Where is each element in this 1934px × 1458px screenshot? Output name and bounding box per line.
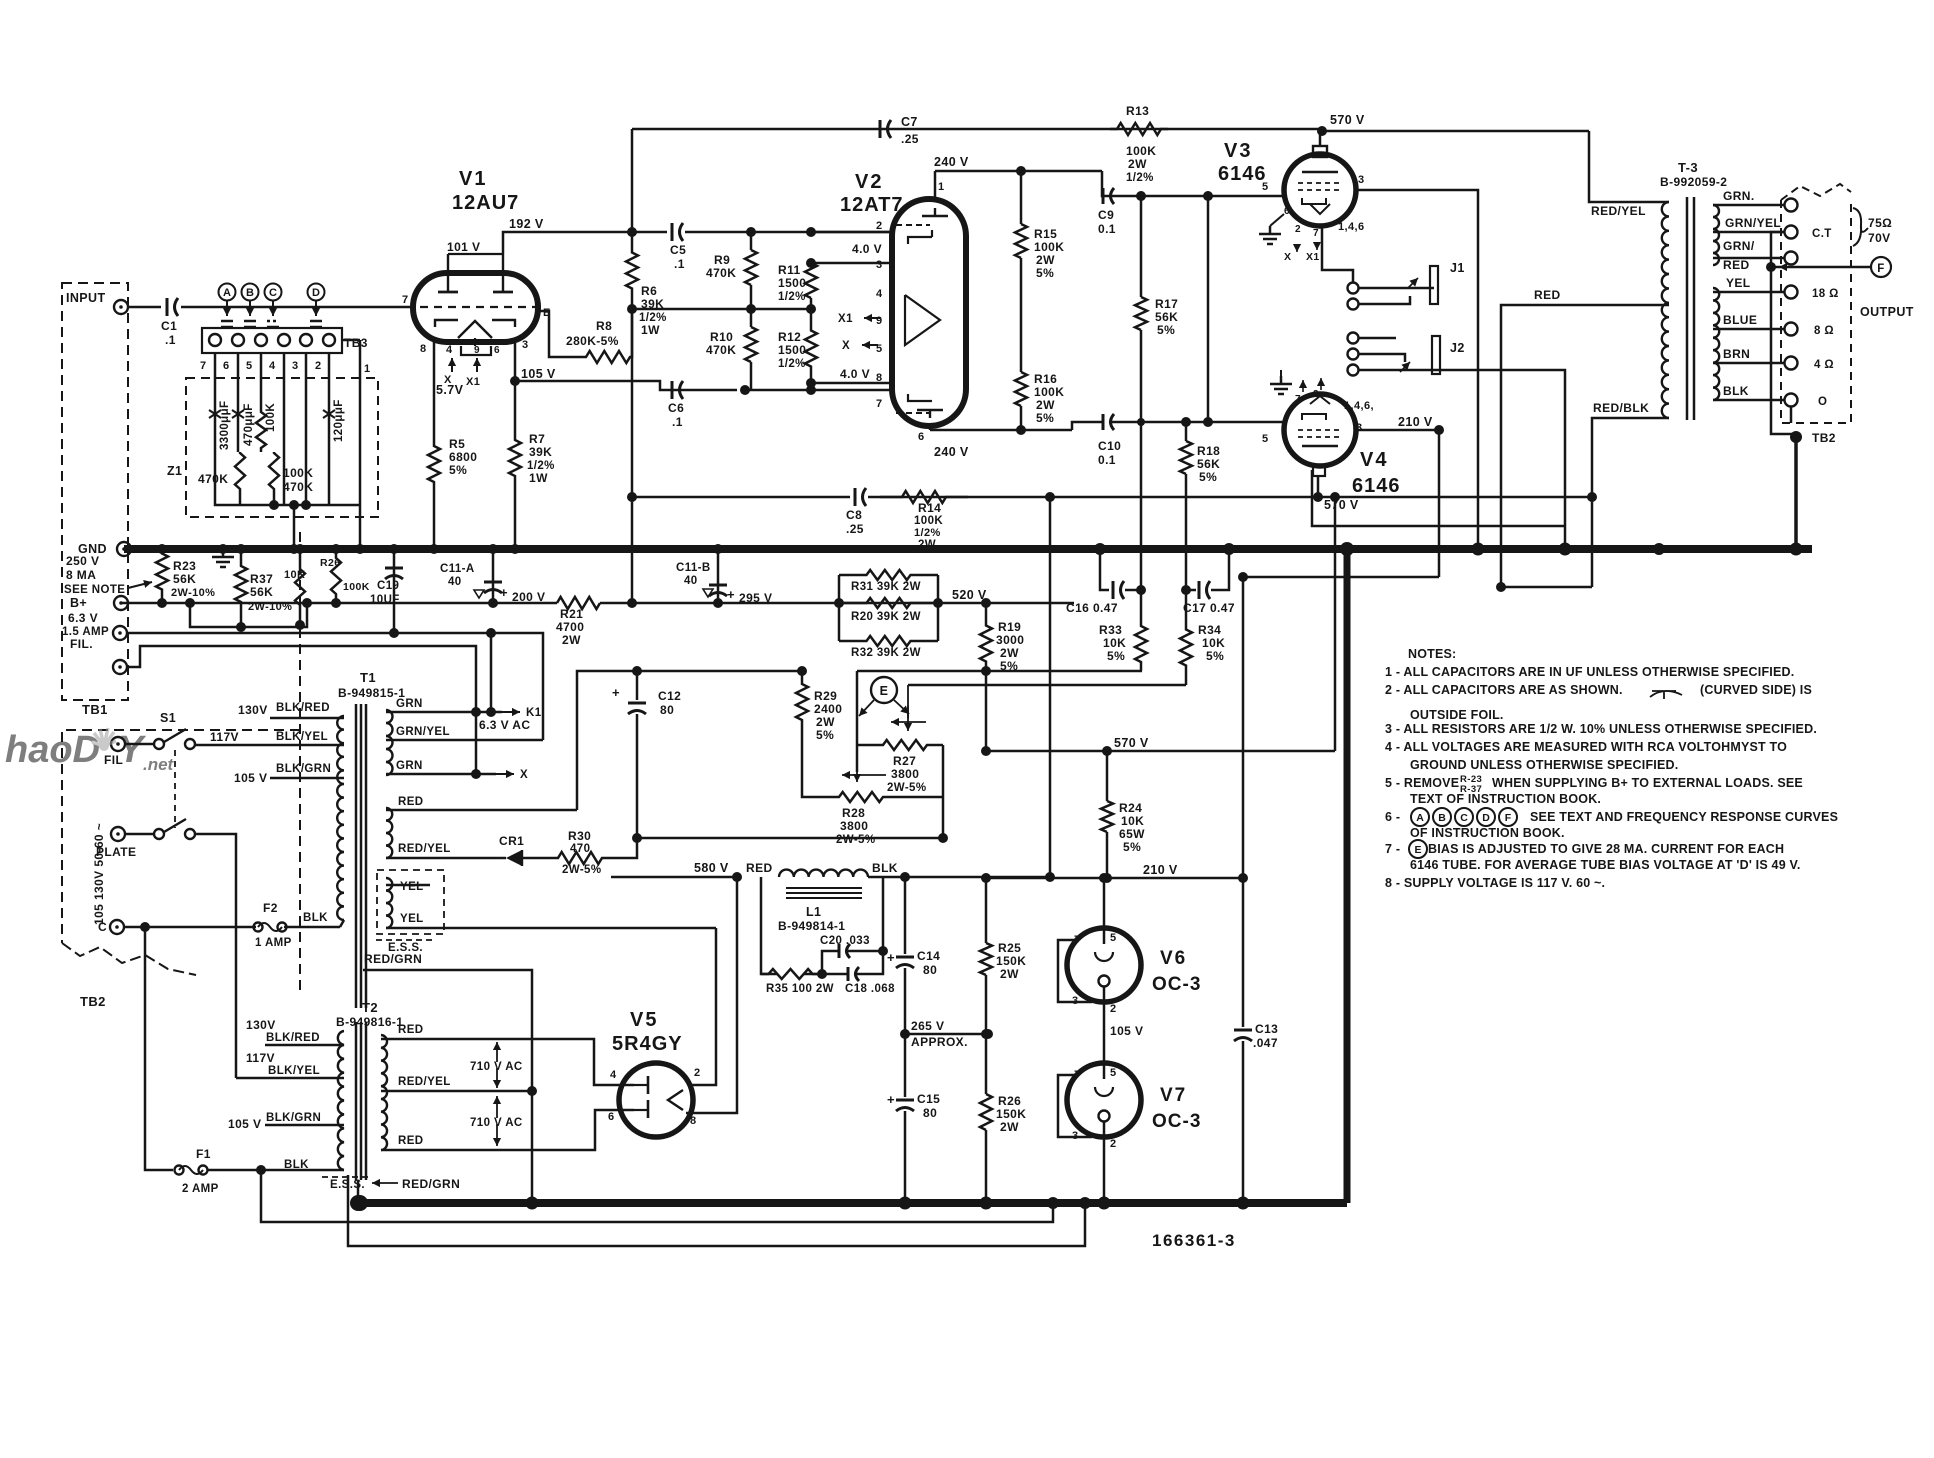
svg-text:7: 7 (876, 398, 883, 410)
svg-text:C10: C10 (1098, 439, 1121, 453)
svg-text:R33: R33 (1099, 623, 1122, 637)
svg-text:.net: .net (143, 755, 175, 774)
svg-text:3300μμF: 3300μμF (219, 401, 231, 450)
svg-text:C17 0.47: C17 0.47 (1183, 601, 1235, 615)
svg-text:100K: 100K (265, 403, 277, 432)
svg-text:570 V: 570 V (1324, 498, 1359, 512)
svg-text:8 MA: 8 MA (66, 568, 96, 582)
svg-text:X: X (1284, 251, 1291, 263)
svg-text:.25: .25 (901, 132, 919, 146)
svg-text:B+: B+ (70, 596, 87, 610)
svg-text:6146: 6146 (1218, 163, 1267, 185)
svg-text:V1: V1 (459, 168, 487, 190)
svg-text:APPROX.: APPROX. (911, 1035, 968, 1049)
svg-text:OUTPUT: OUTPUT (1860, 305, 1914, 319)
svg-text:4.0 V: 4.0 V (852, 242, 882, 256)
svg-text:SEE TEXT AND FREQUENCY RESPONS: SEE TEXT AND FREQUENCY RESPONSE CURVES (1530, 810, 1838, 824)
svg-text:2W: 2W (1128, 157, 1147, 171)
svg-text:E: E (880, 684, 889, 698)
svg-text:1W: 1W (529, 471, 548, 485)
svg-text:2W: 2W (918, 539, 936, 551)
svg-text:2W: 2W (1036, 253, 1055, 267)
svg-text:470μμF: 470μμF (243, 403, 255, 446)
svg-text:12AU7: 12AU7 (452, 192, 519, 214)
svg-text:.1: .1 (672, 415, 683, 429)
svg-text:5.7V: 5.7V (436, 383, 464, 397)
svg-text:3 - ALL RESISTORS ARE 1/2 W. 1: 3 - ALL RESISTORS ARE 1/2 W. 10% UNLESS … (1385, 722, 1817, 736)
svg-text:9: 9 (876, 315, 883, 327)
svg-text:RED: RED (398, 1135, 423, 1147)
svg-text:TB3: TB3 (344, 336, 368, 350)
svg-text:GRN/YEL: GRN/YEL (1725, 216, 1781, 230)
svg-text:1 AMP: 1 AMP (255, 937, 292, 949)
svg-text:YEL: YEL (400, 881, 424, 893)
svg-text:210 V: 210 V (1398, 415, 1433, 429)
svg-text:R27: R27 (893, 754, 916, 768)
svg-text:C9: C9 (1098, 208, 1114, 222)
svg-text:FIL.: FIL. (70, 637, 93, 651)
svg-text:6146: 6146 (1352, 475, 1401, 497)
svg-text:5: 5 (1110, 932, 1117, 944)
svg-text:Z1: Z1 (167, 464, 182, 478)
svg-text:R28: R28 (842, 806, 865, 820)
svg-text:GRN/: GRN/ (1723, 239, 1755, 253)
svg-text:BLK: BLK (284, 1159, 309, 1171)
svg-text:R10: R10 (710, 330, 733, 344)
svg-text:2: 2 (1110, 1138, 1117, 1150)
svg-text:C18 .068: C18 .068 (845, 983, 895, 995)
svg-text:R13: R13 (1126, 104, 1149, 118)
svg-text:1500: 1500 (778, 343, 806, 357)
svg-text:GRN.: GRN. (1723, 189, 1755, 203)
svg-text:F2: F2 (263, 901, 278, 915)
svg-text:5%: 5% (1036, 266, 1054, 280)
svg-text:5%: 5% (1199, 470, 1217, 484)
svg-text:C: C (98, 920, 107, 934)
svg-text:C: C (269, 287, 277, 299)
svg-text:R19: R19 (998, 620, 1021, 634)
svg-text:R24: R24 (1119, 801, 1142, 815)
svg-text:T-3: T-3 (1678, 160, 1698, 175)
svg-text:D: D (312, 287, 320, 299)
svg-text:R29: R29 (814, 689, 837, 703)
svg-text:+: + (500, 585, 508, 600)
svg-text:4: 4 (610, 1069, 617, 1081)
svg-text:2W-5%: 2W-5% (562, 864, 601, 876)
svg-text:6: 6 (608, 1111, 615, 1123)
svg-text:R37: R37 (250, 572, 273, 586)
svg-text:5%: 5% (1206, 649, 1224, 663)
svg-text:100K: 100K (343, 581, 370, 593)
svg-text:C7: C7 (901, 115, 918, 129)
svg-text:RED/GRN: RED/GRN (402, 1177, 460, 1191)
svg-text:56K: 56K (173, 572, 196, 586)
svg-text:GRN/YEL: GRN/YEL (396, 726, 450, 738)
svg-text:3: 3 (1356, 422, 1363, 434)
svg-text:F: F (1505, 812, 1512, 824)
svg-text:BLK/YEL: BLK/YEL (268, 1065, 320, 1077)
svg-text:R7: R7 (529, 432, 545, 446)
svg-text:100K: 100K (1034, 240, 1064, 254)
svg-text:105 V: 105 V (521, 367, 556, 381)
svg-text:4: 4 (446, 344, 453, 356)
svg-text:C: C (1460, 812, 1468, 824)
svg-text:C16 0.47: C16 0.47 (1066, 601, 1118, 615)
svg-text:130V: 130V (238, 703, 268, 717)
svg-text:80: 80 (660, 703, 674, 717)
svg-text:105 V: 105 V (228, 1117, 261, 1131)
svg-text:A: A (223, 287, 231, 299)
svg-text:470: 470 (570, 843, 590, 855)
svg-text:YEL: YEL (400, 913, 424, 925)
svg-text:2W-10%: 2W-10% (248, 601, 292, 613)
svg-text:6146 TUBE. FOR AVERAGE TUBE BI: 6146 TUBE. FOR AVERAGE TUBE BIAS VOLTAGE… (1410, 858, 1801, 872)
svg-text:710 V AC: 710 V AC (470, 1061, 523, 1073)
svg-text:.1: .1 (165, 333, 176, 347)
svg-text:B-992059-2: B-992059-2 (1660, 175, 1727, 189)
svg-text:R31 39K 2W: R31 39K 2W (851, 581, 921, 593)
svg-text:105 130V 50-60 ~: 105 130V 50-60 ~ (92, 823, 106, 925)
svg-text:6 -: 6 - (1385, 810, 1400, 824)
svg-text:R34: R34 (1198, 623, 1221, 637)
svg-text:YEL: YEL (1726, 276, 1751, 290)
svg-text:0.1: 0.1 (1098, 453, 1116, 467)
svg-text:2W: 2W (1000, 646, 1019, 660)
svg-text:X1: X1 (1306, 251, 1320, 263)
svg-text:570 V: 570 V (1330, 113, 1365, 127)
svg-text:7: 7 (1313, 228, 1319, 239)
svg-text:210 V: 210 V (1143, 863, 1178, 877)
svg-text:65W: 65W (1119, 827, 1145, 841)
svg-text:40: 40 (448, 576, 462, 588)
svg-text:5: 5 (246, 360, 253, 372)
svg-text:2: 2 (315, 360, 322, 372)
svg-text:BLK: BLK (872, 861, 898, 875)
svg-text:S1: S1 (160, 711, 176, 725)
svg-text:R35 100 2W: R35 100 2W (766, 983, 834, 995)
svg-text:100K: 100K (914, 515, 943, 527)
svg-text:+: + (727, 587, 735, 602)
svg-text:+: + (887, 950, 895, 965)
svg-text:470K: 470K (706, 266, 736, 280)
svg-text:.047: .047 (1253, 1036, 1278, 1050)
svg-text:1/2%: 1/2% (1126, 172, 1154, 184)
svg-text:R14: R14 (918, 501, 941, 515)
svg-text:T1: T1 (360, 670, 376, 685)
svg-text:BIAS IS ADJUSTED TO GIVE 28: BIAS IS ADJUSTED TO GIVE 28 MA. CURRENT … (1428, 842, 1784, 856)
svg-text:40: 40 (684, 575, 698, 587)
svg-text:6: 6 (1284, 206, 1290, 217)
svg-text:V5: V5 (630, 1009, 658, 1031)
svg-text:RED/YEL: RED/YEL (398, 1076, 451, 1088)
svg-text:4: 4 (269, 360, 276, 372)
svg-text:R18: R18 (1197, 444, 1220, 458)
svg-text:2: 2 (694, 1067, 701, 1079)
svg-text:R20 39K 2W: R20 39K 2W (851, 611, 921, 623)
svg-text:RED: RED (398, 796, 423, 808)
svg-text:OC-3: OC-3 (1152, 1111, 1201, 1132)
svg-text:80: 80 (923, 1106, 937, 1120)
svg-text:3800: 3800 (891, 767, 919, 781)
svg-text:PLATE: PLATE (96, 845, 136, 859)
svg-text:X: X (520, 769, 528, 781)
svg-text:1 - ALL CAPACITORS ARE IN UF U: 1 - ALL CAPACITORS ARE IN UF UNLESS OTHE… (1385, 665, 1794, 679)
svg-text:R32 39K 2W: R32 39K 2W (851, 647, 921, 659)
svg-text:C.T: C.T (1812, 228, 1832, 240)
svg-text:R11: R11 (778, 263, 801, 277)
svg-text:RED/GRN: RED/GRN (364, 952, 422, 966)
svg-text:NOTES:: NOTES: (1408, 647, 1456, 661)
svg-text:C8: C8 (846, 508, 862, 522)
svg-text:TB1: TB1 (82, 702, 108, 717)
svg-text:2: 2 (1110, 1003, 1117, 1015)
svg-text:3800: 3800 (840, 819, 868, 833)
svg-text:O: O (1818, 396, 1827, 408)
svg-text:R8: R8 (596, 319, 612, 333)
svg-text:18 Ω: 18 Ω (1812, 288, 1839, 300)
svg-text:56K: 56K (250, 585, 273, 599)
svg-text:R17: R17 (1155, 297, 1178, 311)
svg-text:5%: 5% (816, 728, 834, 742)
svg-text:105 V: 105 V (1110, 1024, 1143, 1038)
svg-text:R5: R5 (449, 437, 465, 451)
svg-text:250 V: 250 V (66, 554, 99, 568)
svg-text:2W: 2W (562, 633, 581, 647)
svg-text:295 V: 295 V (739, 591, 772, 605)
svg-text:C15: C15 (917, 1092, 940, 1106)
svg-text:2: 2 (1313, 389, 1319, 400)
svg-text:R23: R23 (173, 559, 196, 573)
svg-text:E: E (1414, 844, 1421, 856)
svg-text:OF INSTRUCTION BOOK.: OF INSTRUCTION BOOK. (1410, 826, 1565, 840)
svg-text:+: + (612, 685, 620, 700)
svg-text:5R4GY: 5R4GY (612, 1033, 683, 1055)
svg-text:RED: RED (398, 1024, 423, 1036)
svg-text:10K: 10K (284, 569, 305, 581)
svg-text:J1: J1 (1450, 261, 1465, 275)
svg-text:CR1: CR1 (499, 834, 524, 848)
svg-text:6800: 6800 (449, 450, 477, 464)
svg-text:2: 2 (1295, 224, 1301, 235)
svg-text:X1: X1 (466, 376, 480, 388)
svg-text:R6: R6 (641, 284, 657, 298)
svg-text:7: 7 (200, 360, 207, 372)
svg-text:TB2: TB2 (80, 994, 106, 1009)
svg-text:10K: 10K (1202, 636, 1225, 650)
svg-text:200 V: 200 V (512, 590, 545, 604)
svg-text:V7: V7 (1160, 1085, 1187, 1106)
svg-text:C5: C5 (670, 243, 686, 257)
svg-text:1W: 1W (641, 323, 660, 337)
svg-text:D: D (1482, 812, 1490, 824)
svg-text:BLK/RED: BLK/RED (276, 702, 330, 714)
svg-text:.25: .25 (846, 522, 864, 536)
svg-text:RED: RED (1534, 288, 1561, 302)
svg-text:R15: R15 (1034, 227, 1057, 241)
svg-text:2W: 2W (1036, 398, 1055, 412)
svg-text:R26: R26 (998, 1094, 1021, 1108)
svg-text:3: 3 (876, 259, 883, 271)
svg-text:9: 9 (474, 345, 480, 356)
svg-text:5: 5 (1262, 433, 1269, 445)
svg-text:6.3 V AC: 6.3 V AC (479, 718, 530, 732)
svg-text:56K: 56K (1155, 310, 1178, 324)
svg-text:V4: V4 (1360, 449, 1388, 471)
svg-text:TEXT OF INSTRUCTION BOOK.: TEXT OF INSTRUCTION BOOK. (1410, 792, 1601, 806)
svg-text:R25: R25 (998, 941, 1021, 955)
svg-text:5: 5 (1110, 1067, 1117, 1079)
svg-text:RED/BLK: RED/BLK (1593, 401, 1649, 415)
svg-text:3000: 3000 (996, 633, 1024, 647)
svg-text:6: 6 (494, 345, 500, 356)
svg-text:3: 3 (1358, 174, 1365, 186)
svg-text:6: 6 (918, 431, 925, 443)
svg-text:J2: J2 (1450, 341, 1465, 355)
svg-text:RED: RED (1723, 258, 1750, 272)
svg-text:8 - SUPPLY VOLTAGE IS 117 V. 6: 8 - SUPPLY VOLTAGE IS 117 V. 60 ~. (1385, 876, 1605, 890)
svg-text:130V: 130V (246, 1018, 276, 1032)
svg-text:2W-5%: 2W-5% (836, 834, 875, 846)
svg-text:B-949816-1: B-949816-1 (336, 1015, 403, 1029)
svg-text:56K: 56K (1197, 457, 1220, 471)
svg-text:10K: 10K (1121, 814, 1144, 828)
svg-text:C12: C12 (658, 689, 681, 703)
svg-text:R12: R12 (778, 330, 801, 344)
svg-text:39K: 39K (529, 445, 552, 459)
svg-text:haoD: haoD (5, 729, 100, 771)
svg-text:R30: R30 (568, 829, 591, 843)
svg-text:101 V: 101 V (447, 240, 480, 254)
svg-text:C6: C6 (668, 401, 684, 415)
svg-text:166361-3: 166361-3 (1152, 1231, 1236, 1250)
svg-text:5%: 5% (1157, 323, 1175, 337)
svg-text:100K: 100K (1034, 385, 1064, 399)
svg-text:105 V: 105 V (234, 771, 267, 785)
svg-text:1/2%: 1/2% (778, 358, 806, 370)
svg-text:4 Ω: 4 Ω (1814, 359, 1834, 371)
svg-text:580 V: 580 V (694, 861, 729, 875)
svg-text:8: 8 (690, 1115, 697, 1127)
svg-text:OUTSIDE FOIL.: OUTSIDE FOIL. (1410, 708, 1504, 722)
svg-text:+: + (887, 1092, 895, 1107)
svg-text:B: B (246, 287, 254, 299)
svg-text:240 V: 240 V (934, 155, 969, 169)
svg-text:710 V AC: 710 V AC (470, 1117, 523, 1129)
svg-text:5%: 5% (1107, 649, 1125, 663)
svg-text:TB2: TB2 (1812, 431, 1836, 445)
svg-text:T2: T2 (362, 1000, 378, 1015)
svg-text:0.1: 0.1 (1098, 222, 1116, 236)
svg-text:A: A (1416, 812, 1424, 824)
svg-text:V2: V2 (855, 171, 883, 193)
svg-text:OC-3: OC-3 (1152, 974, 1201, 995)
svg-text:7 -: 7 - (1385, 842, 1400, 856)
svg-text:1: 1 (364, 363, 371, 375)
svg-text:1,4,6,: 1,4,6, (1344, 400, 1374, 412)
svg-text:GRN: GRN (396, 698, 423, 710)
svg-text:4 - ALL VOLTAGES ARE MEASURED: 4 - ALL VOLTAGES ARE MEASURED WITH RCA V… (1385, 740, 1787, 754)
svg-text:150K: 150K (996, 1107, 1026, 1121)
svg-text:BLK/GRN: BLK/GRN (266, 1112, 321, 1124)
svg-text:117V: 117V (210, 730, 239, 744)
svg-text:RED/YEL: RED/YEL (1591, 204, 1646, 218)
svg-text:C11-B: C11-B (676, 562, 711, 574)
svg-text:2 - ALL CAPACITORS ARE AS SHOW: 2 - ALL CAPACITORS ARE AS SHOWN. (1385, 683, 1623, 697)
svg-text:V6: V6 (1160, 948, 1187, 969)
svg-text:1500: 1500 (778, 276, 806, 290)
svg-text:R-37: R-37 (1460, 784, 1482, 795)
svg-text:X1: X1 (838, 313, 853, 325)
svg-text:75Ω: 75Ω (1868, 216, 1892, 230)
svg-text:4.0 V: 4.0 V (840, 367, 870, 381)
svg-text:7: 7 (1295, 394, 1301, 405)
svg-text:RED/YEL: RED/YEL (398, 843, 451, 855)
svg-text:5 - REMOVE: 5 - REMOVE (1385, 776, 1459, 790)
svg-text:C13: C13 (1255, 1022, 1278, 1036)
svg-text:470K: 470K (706, 343, 736, 357)
svg-text:BLK: BLK (303, 912, 328, 924)
svg-text:(CURVED SIDE) IS: (CURVED SIDE) IS (1700, 683, 1812, 697)
svg-text:BLK/YEL: BLK/YEL (276, 731, 328, 743)
svg-text:570 V: 570 V (1114, 736, 1149, 750)
svg-text:2W-5%: 2W-5% (887, 782, 926, 794)
svg-text:L1: L1 (806, 905, 821, 919)
svg-text:100K: 100K (283, 466, 313, 480)
svg-text:3: 3 (292, 360, 299, 372)
svg-text:C20 .033: C20 .033 (820, 935, 870, 947)
svg-text:R26: R26 (320, 557, 340, 569)
svg-text:V3: V3 (1224, 140, 1252, 162)
svg-text:1: 1 (938, 181, 945, 193)
svg-text:120μμF: 120μμF (333, 399, 345, 442)
svg-text:1/2%: 1/2% (778, 291, 806, 303)
svg-text:12AT7: 12AT7 (840, 194, 904, 216)
svg-text:K1: K1 (526, 707, 542, 719)
svg-text:4: 4 (876, 288, 883, 300)
svg-text:6: 6 (223, 360, 230, 372)
svg-text:470K: 470K (198, 472, 228, 486)
svg-text:2: 2 (876, 220, 883, 232)
svg-text:C11-A: C11-A (440, 563, 475, 575)
svg-text:80: 80 (923, 963, 937, 977)
svg-text:INPUT: INPUT (66, 291, 106, 305)
svg-text:C19: C19 (377, 580, 399, 592)
svg-text:2W: 2W (1000, 1120, 1019, 1134)
svg-text:5%: 5% (1036, 411, 1054, 425)
svg-text:2 AMP: 2 AMP (182, 1183, 219, 1195)
svg-text:2W: 2W (1000, 967, 1019, 981)
svg-text:4700: 4700 (556, 620, 584, 634)
svg-text:BRN: BRN (1723, 347, 1750, 361)
svg-text:2W-10%: 2W-10% (171, 587, 215, 599)
svg-text:.1: .1 (674, 257, 685, 271)
svg-text:BLK/RED: BLK/RED (266, 1032, 320, 1044)
svg-text:6.3 V: 6.3 V (68, 611, 98, 625)
svg-text:1,4,6: 1,4,6 (1338, 221, 1364, 233)
svg-text:X: X (842, 340, 850, 352)
svg-text:B-949814-1: B-949814-1 (778, 919, 845, 933)
svg-text:C1: C1 (161, 319, 177, 333)
svg-text:BLK: BLK (1723, 384, 1749, 398)
svg-text:10K: 10K (1103, 636, 1126, 650)
svg-text:C14: C14 (917, 949, 940, 963)
svg-text:GRN: GRN (396, 760, 423, 772)
svg-text:R9: R9 (714, 253, 730, 267)
svg-text:GROUND UNLESS OTHERWISE SPECIF: GROUND UNLESS OTHERWISE SPECIFIED. (1410, 758, 1678, 772)
svg-text:RED: RED (746, 861, 773, 875)
svg-text:BLUE: BLUE (1723, 313, 1757, 327)
svg-text:2400: 2400 (814, 702, 842, 716)
